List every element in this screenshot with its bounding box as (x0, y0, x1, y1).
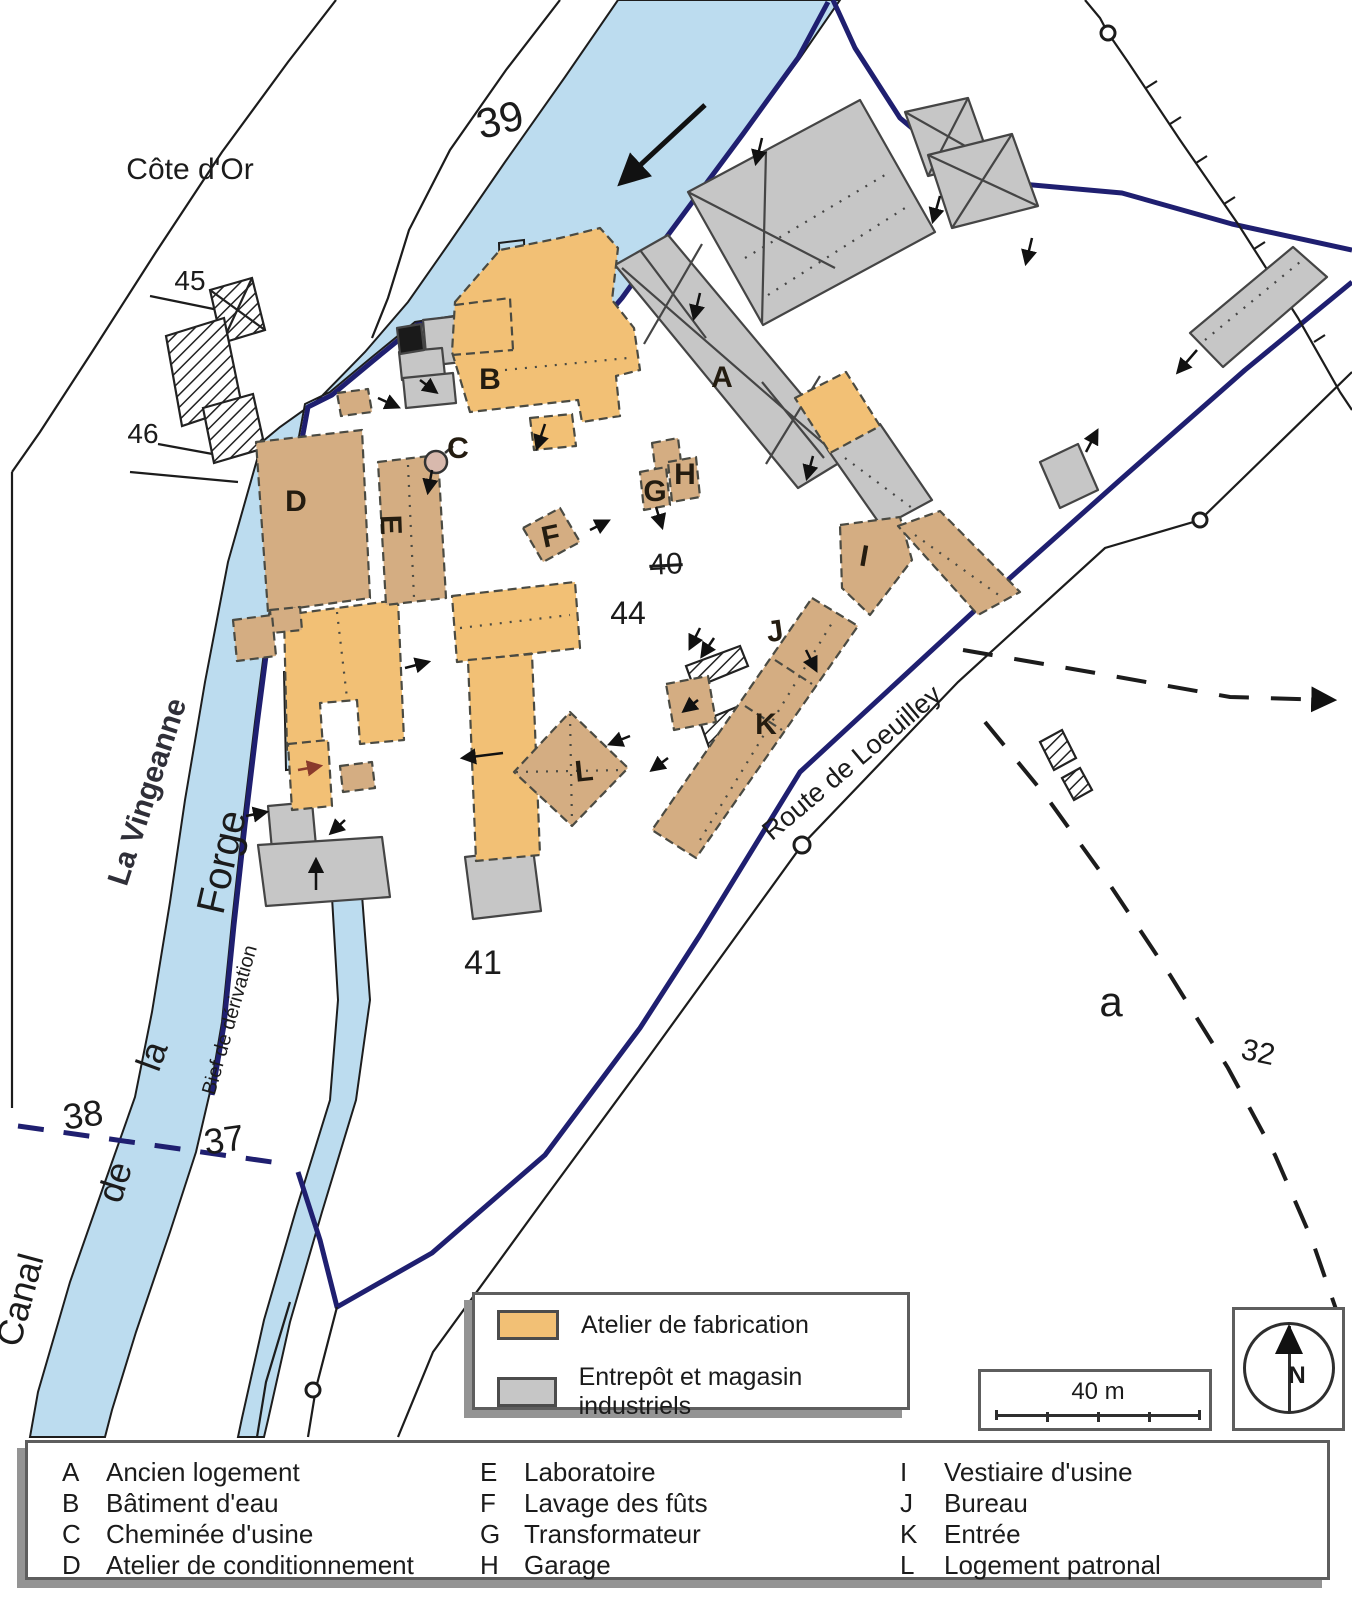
scale-tick (1148, 1412, 1151, 1422)
key-item: GTransformateur (480, 1519, 708, 1550)
fabrication-swatch (497, 1310, 559, 1340)
scale-tick (1046, 1412, 1049, 1422)
parcel-45-label: 45 (174, 267, 205, 295)
building-I-shape (840, 517, 912, 615)
building-E-label: E (375, 514, 406, 535)
key-item: FLavage des fûts (480, 1488, 708, 1519)
legend-label: Atelier de fabrication (581, 1311, 809, 1340)
parcel-37-label: 37 (202, 1119, 247, 1160)
legend-label: Entrepôt et magasin industriels (579, 1363, 907, 1421)
building-C-label: C (447, 434, 469, 464)
scale-tick (1097, 1412, 1100, 1422)
key-item: LLogement patronal (900, 1550, 1161, 1581)
legend-item-fabrication: Atelier de fabrication (497, 1310, 809, 1340)
key-name: Cheminée d'usine (106, 1519, 313, 1550)
key-name: Atelier de conditionnement (106, 1550, 414, 1581)
key-column-3: IVestiaire d'usine JBureau KEntrée LLoge… (900, 1457, 1161, 1581)
bief-shape (238, 895, 370, 1437)
key-item: DAtelier de conditionnement (62, 1550, 414, 1581)
parcel-a-label: a (1099, 981, 1122, 1023)
key-column-1: AAncien logement BBâtiment d'eau CChemin… (62, 1457, 414, 1581)
key-name: Logement patronal (944, 1550, 1161, 1581)
parcel-32-label: 32 (1239, 1035, 1278, 1071)
key-column-2: ELaboratoire FLavage des fûts GTransform… (480, 1457, 708, 1581)
region-label: Côte d'Or (126, 155, 253, 185)
key-letter: A (62, 1457, 106, 1488)
key-item: ELaboratoire (480, 1457, 708, 1488)
key-letter: C (62, 1519, 106, 1550)
key-letter: I (900, 1457, 944, 1488)
legend-item-entrepot: Entrepôt et magasin industriels (497, 1363, 907, 1421)
building-K-shape (666, 676, 716, 730)
scale-tick (1198, 1410, 1201, 1420)
key-letter: B (62, 1488, 106, 1519)
key-letter: D (62, 1550, 106, 1581)
parcel-38-label: 38 (61, 1094, 106, 1135)
key-name: Bâtiment d'eau (106, 1488, 279, 1519)
parcel-46-label: 46 (127, 420, 158, 448)
key-letter: E (480, 1457, 524, 1488)
key-name: Transformateur (524, 1519, 701, 1550)
key-letter: F (480, 1488, 524, 1519)
key-item: AAncien logement (62, 1457, 414, 1488)
key-name: Vestiaire d'usine (944, 1457, 1133, 1488)
key-item: IVestiaire d'usine (900, 1457, 1161, 1488)
scale-label: 40 m (1071, 1378, 1124, 1406)
scale-bar-panel: 40 m (978, 1369, 1212, 1431)
building-G-label: G (643, 477, 666, 507)
building-D-shape (256, 430, 370, 612)
compass-north-label: N (1288, 1362, 1305, 1390)
building-A-label: A (711, 363, 733, 393)
site-plan-map: Côte d'Or 39 45 46 38 37 41 44 40 32 a L… (0, 0, 1352, 1600)
key-name: Laboratoire (524, 1457, 656, 1488)
key-item: CCheminée d'usine (62, 1519, 414, 1550)
building-D-label: D (285, 487, 307, 517)
warehouse-swatch (497, 1377, 557, 1407)
parcel-39-label: 39 (472, 94, 527, 146)
building-L-label: L (573, 756, 594, 788)
key-letter: L (900, 1550, 944, 1581)
key-name: Ancien logement (106, 1457, 300, 1488)
legend-panel: Atelier de fabrication Entrepôt et magas… (472, 1292, 910, 1410)
building-K-label: K (755, 710, 777, 740)
building-H-label: H (674, 460, 696, 490)
scale-tick (995, 1410, 998, 1420)
parcel-44-label: 44 (610, 597, 646, 629)
key-item: HGarage (480, 1550, 708, 1581)
parcel-41-label: 41 (464, 946, 502, 980)
key-name: Lavage des fûts (524, 1488, 708, 1519)
parcel-40-struck-label: 40 (649, 549, 684, 581)
key-letter: G (480, 1519, 524, 1550)
key-letter: J (900, 1488, 944, 1519)
key-name: Entrée (944, 1519, 1021, 1550)
key-item: BBâtiment d'eau (62, 1488, 414, 1519)
building-B-label: B (479, 365, 501, 395)
key-item: JBureau (900, 1488, 1161, 1519)
building-key-panel: AAncien logement BBâtiment d'eau CChemin… (25, 1440, 1330, 1580)
key-item: KEntrée (900, 1519, 1161, 1550)
key-name: Garage (524, 1550, 611, 1581)
north-arrow-head-icon (1275, 1324, 1303, 1354)
key-letter: H (480, 1550, 524, 1581)
key-name: Bureau (944, 1488, 1028, 1519)
compass-panel: N (1232, 1307, 1345, 1431)
key-letter: K (900, 1519, 944, 1550)
